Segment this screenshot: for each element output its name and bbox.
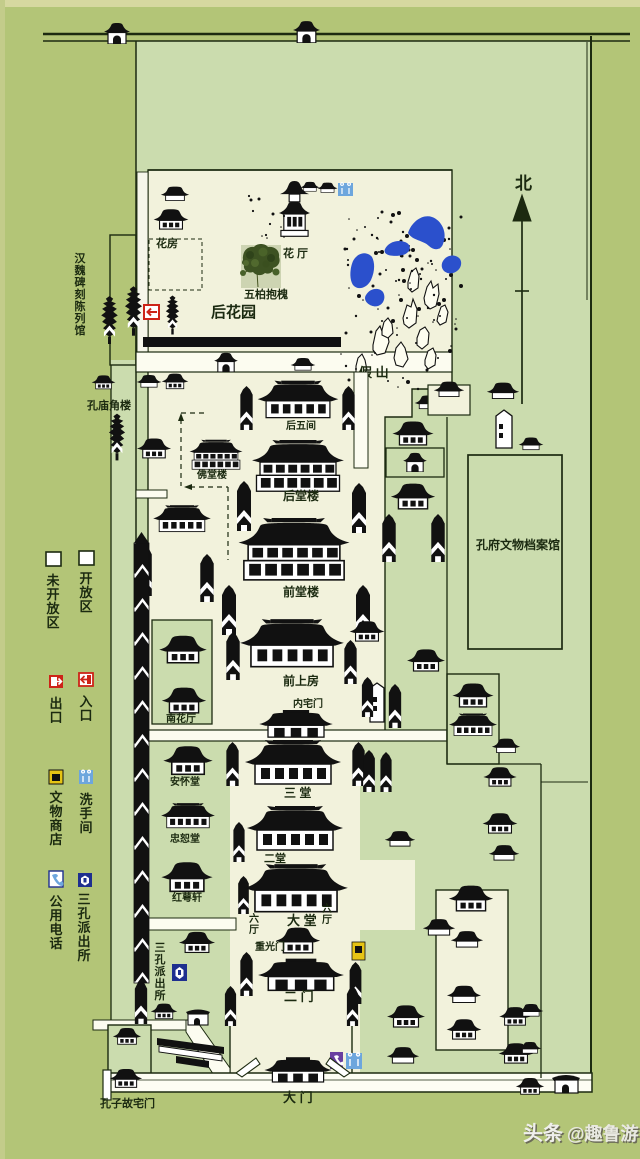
svg-text:孔府文物档案馆: 孔府文物档案馆 [476,537,560,552]
svg-text:南花厅: 南花厅 [166,712,196,725]
svg-text:红萼轩: 红萼轩 [172,891,202,904]
svg-text:六厅: 六厅 [249,912,259,936]
svg-text:佛堂楼: 佛堂楼 [196,468,227,481]
svg-text:后花园: 后花园 [211,303,256,321]
svg-text:洗手间: 洗手间 [79,792,92,835]
svg-text:大 堂: 大 堂 [287,913,317,928]
svg-text:内宅门: 内宅门 [293,697,323,710]
svg-text:二堂: 二堂 [264,851,286,865]
svg-text:文物商店: 文物商店 [49,790,63,847]
svg-text:花 厅: 花 厅 [283,246,308,260]
svg-text:孔子故宅门: 孔子故宅门 [100,1096,155,1110]
svg-text:重光门: 重光门 [255,940,285,953]
svg-text:五柏抱槐: 五柏抱槐 [244,287,288,301]
svg-text:前上房: 前上房 [283,673,319,688]
svg-text:二 门: 二 门 [284,989,314,1004]
svg-text:前堂楼: 前堂楼 [283,584,319,599]
svg-text:安怀堂: 安怀堂 [170,775,200,788]
svg-text:三孔派出所: 三孔派出所 [77,892,91,963]
svg-text:@趣鲁游: @趣鲁游 [567,1123,639,1144]
svg-text:后堂楼: 后堂楼 [283,488,319,503]
svg-text:头条: 头条 [523,1121,564,1145]
svg-text:入口: 入口 [79,694,92,723]
svg-text:忠恕堂: 忠恕堂 [170,832,200,845]
svg-text:公用电话: 公用电话 [48,894,62,951]
svg-text:开放区: 开放区 [78,571,93,614]
svg-text:三 堂: 三 堂 [284,785,311,800]
svg-text:花房: 花房 [156,236,178,250]
svg-text:大 门: 大 门 [283,1090,313,1105]
svg-text:六厅: 六厅 [322,902,332,926]
svg-text:未开放区: 未开放区 [45,573,60,630]
svg-text:后五间: 后五间 [286,419,316,432]
svg-text:汉魏碑刻陈列馆: 汉魏碑刻陈列馆 [74,251,87,337]
svg-text:北: 北 [515,174,532,193]
svg-text:三孔派出所: 三孔派出所 [155,941,167,1002]
svg-text:孔庙角楼: 孔庙角楼 [87,398,131,412]
svg-text:出口: 出口 [49,696,62,725]
